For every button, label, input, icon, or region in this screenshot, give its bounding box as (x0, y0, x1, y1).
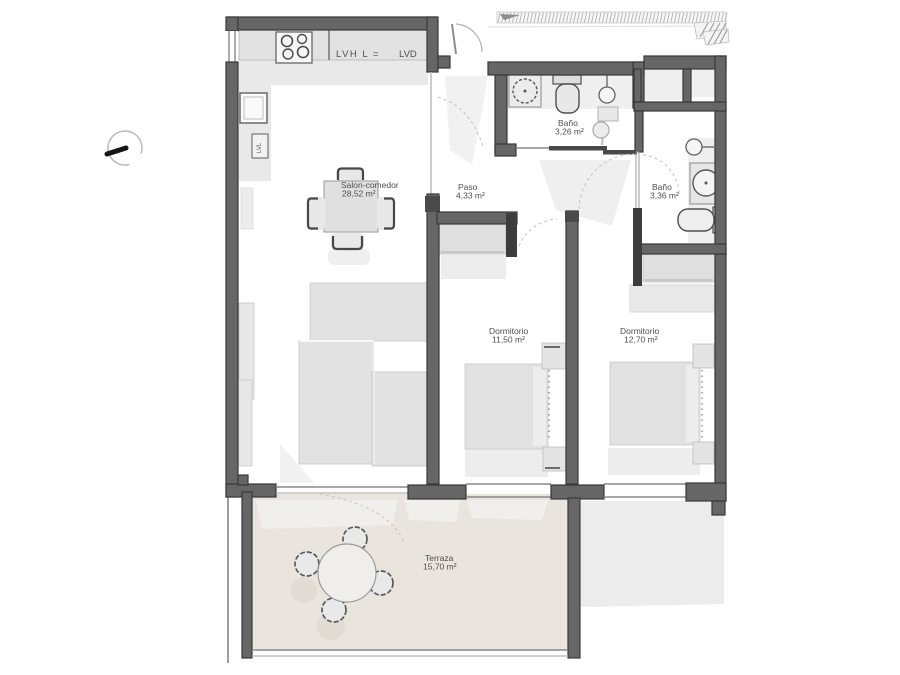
svg-text:3,36 m²: 3,36 m² (650, 191, 679, 201)
svg-text:15,70 m²: 15,70 m² (423, 562, 457, 572)
svg-text:3,26 m²: 3,26 m² (555, 127, 584, 137)
svg-text:LVL: LVL (257, 142, 263, 153)
svg-text:LVD: LVD (399, 49, 417, 60)
svg-text:11,50 m²: 11,50 m² (492, 335, 525, 345)
svg-text:12,70 m²: 12,70 m² (624, 335, 658, 345)
svg-text:4,33 m²: 4,33 m² (456, 191, 485, 201)
svg-text:28,52 m²: 28,52 m² (342, 189, 376, 199)
svg-text:LVH L =: LVH L = (336, 49, 380, 60)
